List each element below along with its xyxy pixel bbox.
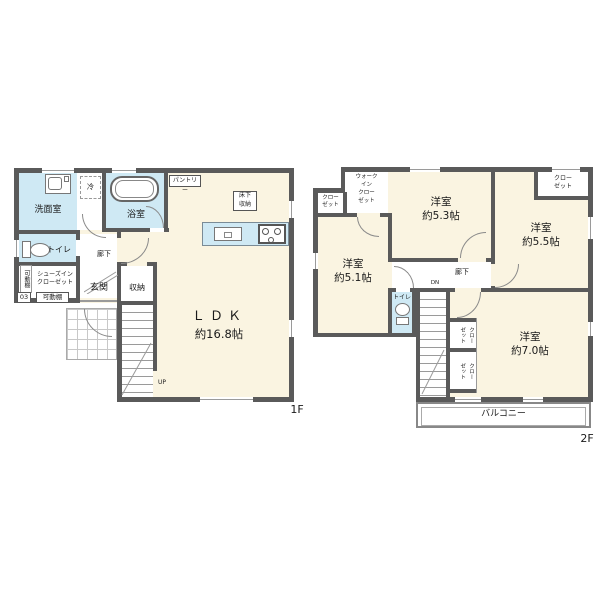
f2-closet-lower-label: クロー ゼット: [453, 356, 475, 387]
floor-plan-2f: クロー ゼット ウォーク イン クロー ゼット 洋室 約5.3帖 クロー ゼット…: [0, 0, 600, 600]
f2-stairs-diagonal: [420, 292, 446, 397]
f2-toilet-tank: [396, 317, 409, 325]
f2-wall-stairs-right: [446, 288, 450, 402]
f2-wall-bottom-left: [313, 333, 420, 337]
f2-wall-closet-tr-bottom: [534, 196, 592, 200]
f2-outside-bottom-left: [313, 337, 416, 402]
f2-wall-bed51-top-a: [313, 213, 357, 217]
f2-toilet-bowl-icon: [395, 303, 410, 316]
f2-wall-bed70-top-b: [481, 288, 593, 292]
f2-wall-closet-mid-bottom: [450, 348, 477, 352]
f2-bedroom70-label: 洋室 約7.0帖: [485, 331, 575, 358]
f2-outside-top-left: [313, 167, 341, 190]
f2-closet-folding-door-line: [476, 318, 477, 393]
f2-window-right-1-line: [590, 217, 591, 239]
f2-bedroom55-label: 洋室 約5.5帖: [496, 222, 586, 249]
f2-bedroom51-label: 洋室 約5.1帖: [308, 258, 398, 285]
f2-wall-closet-lower-bottom: [450, 389, 477, 393]
f2-balcony-door-1-line: [455, 399, 481, 400]
f2-toilet-label: トイレ: [391, 294, 413, 302]
f2-window-top-1-line: [410, 169, 440, 170]
floorplan-canvas: 冷 床下 収納 パントリー 可動棚 03 可動棚 洗面室 浴室 トイレ 廊下 シ…: [0, 0, 600, 600]
f2-wall-right: [588, 167, 593, 402]
f2-window-right-2-line: [590, 322, 591, 336]
f2-closet-middle-label: クロー ゼット: [453, 323, 475, 347]
f2-window-top-2-line: [552, 169, 580, 170]
f2-balcony-label: バルコニー: [421, 409, 586, 421]
f2-floor-label: 2F: [574, 432, 600, 446]
f2-walk-in-closet-label: ウォーク イン クロー ゼット: [345, 174, 388, 206]
f2-stairs-down-label: DN: [426, 280, 444, 287]
f2-wall-closet-mid-top: [450, 318, 477, 322]
f2-hallway-label: 廊下: [447, 268, 477, 277]
f2-closet-top-left-label: クロー ゼット: [318, 195, 343, 210]
f2-wall-bed53-right-a: [491, 172, 495, 264]
f2-wall-bed51-right-a: [388, 213, 392, 262]
f2-closet-top-right-label: クロー ゼット: [538, 175, 588, 192]
f2-wall-bed53-bottom-a: [392, 258, 458, 262]
f2-bedroom53-label: 洋室 約5.3帖: [396, 196, 486, 223]
f2-toilet-door-gap: [396, 288, 410, 292]
f2-balcony-door-2-line: [523, 399, 543, 400]
